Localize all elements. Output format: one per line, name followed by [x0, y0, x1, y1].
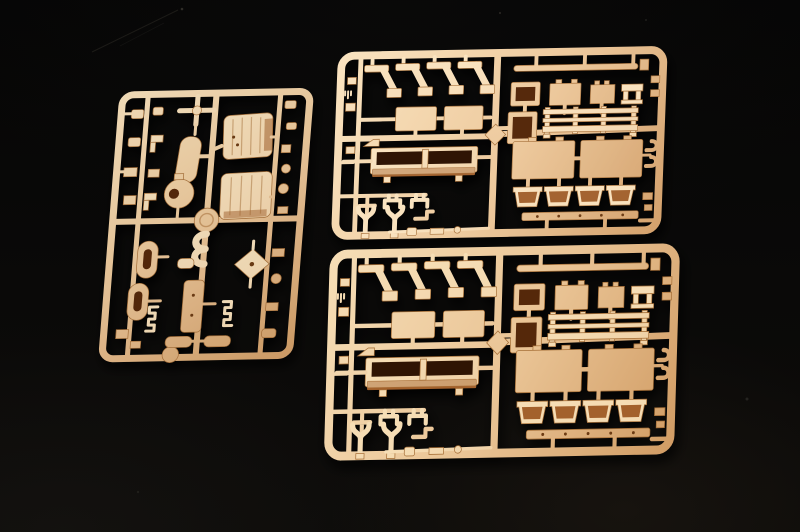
photo-background: [0, 0, 800, 532]
dust-speck: [499, 12, 501, 14]
dust-speck: [645, 19, 647, 21]
upper-right-sprue: [335, 50, 664, 239]
dust-speck: [181, 8, 184, 11]
sprues-photo: [0, 0, 800, 532]
dust-speck: [746, 398, 749, 401]
dust-speck: [137, 491, 139, 493]
lower-right-sprue: [328, 248, 676, 460]
left-sprue: [101, 91, 310, 364]
